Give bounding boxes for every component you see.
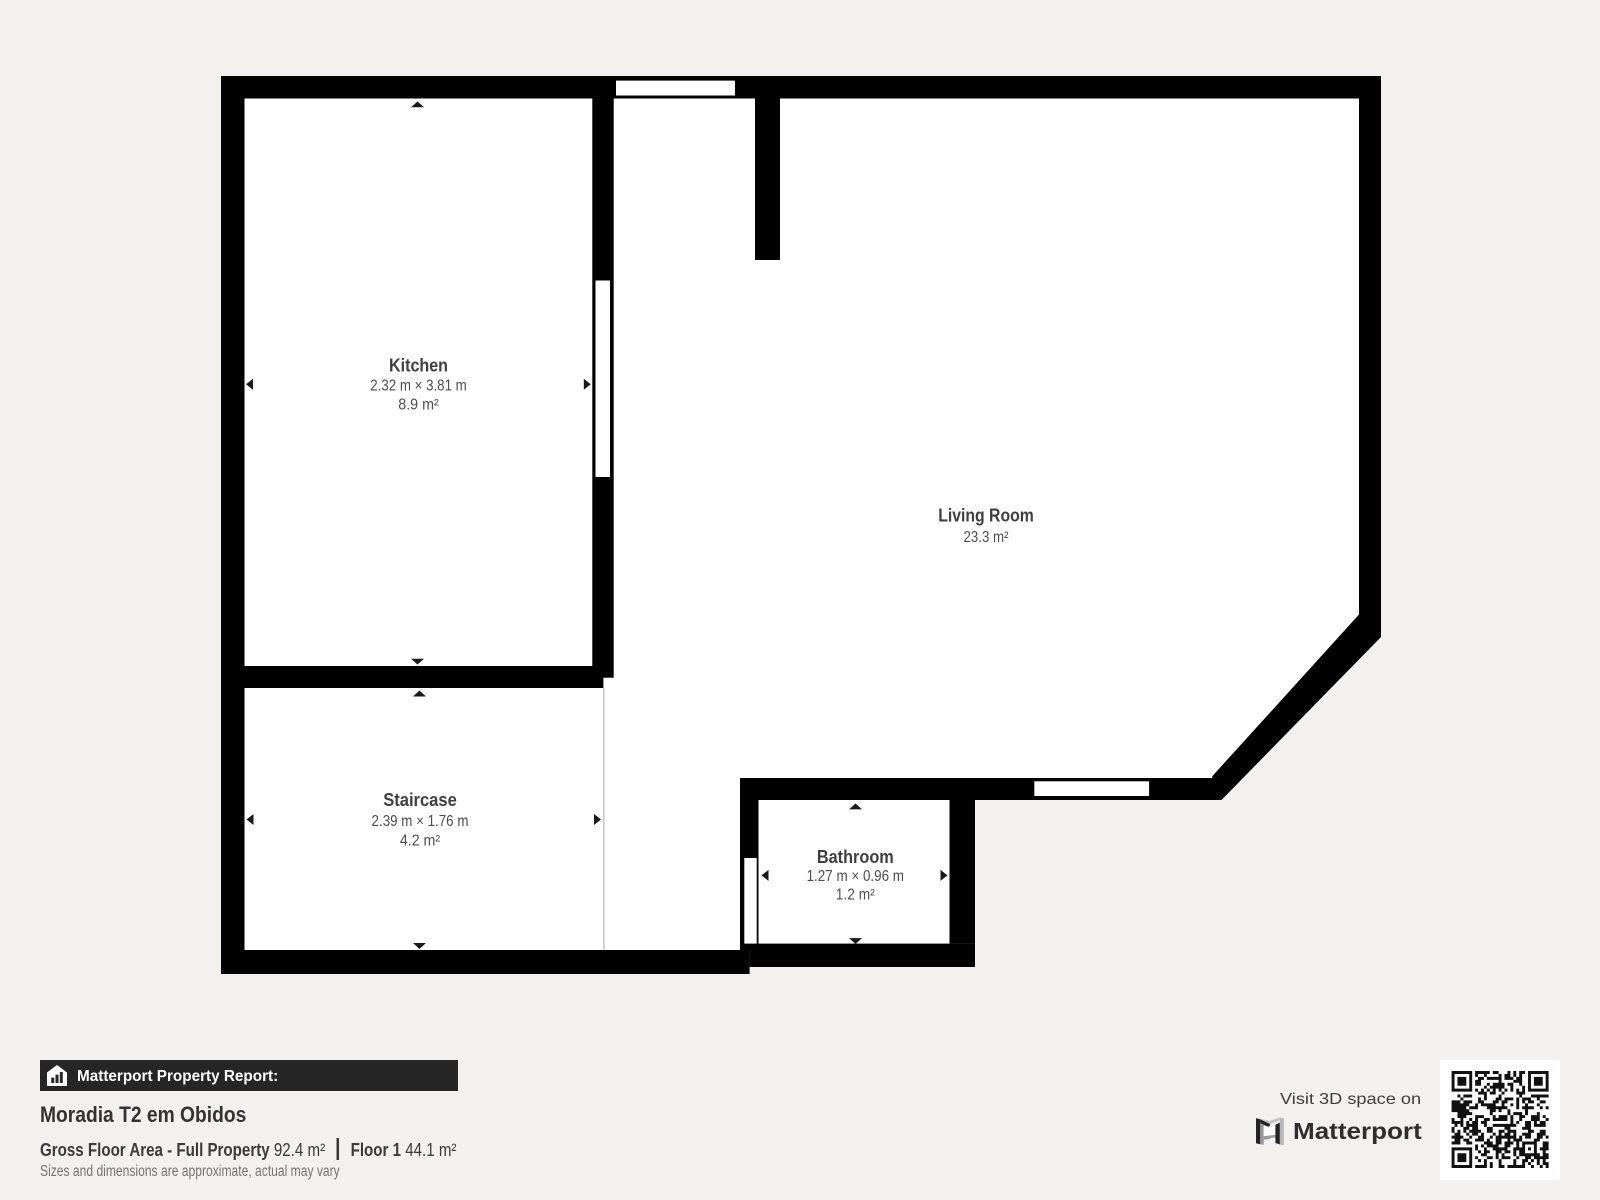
- svg-text:2.32 m × 3.81 m: 2.32 m × 3.81 m: [370, 378, 467, 395]
- svg-text:Staircase: Staircase: [383, 790, 457, 810]
- svg-text:Bathroom: Bathroom: [817, 847, 894, 867]
- svg-text:1.2 m²: 1.2 m²: [836, 887, 875, 904]
- svg-text:4.2 m²: 4.2 m²: [400, 833, 440, 850]
- svg-text:Kitchen: Kitchen: [389, 356, 448, 376]
- svg-text:Living Room: Living Room: [938, 506, 1034, 526]
- svg-text:8.9 m²: 8.9 m²: [398, 397, 439, 414]
- svg-text:23.3 m²: 23.3 m²: [964, 529, 1009, 546]
- svg-text:2.39 m × 1.76 m: 2.39 m × 1.76 m: [372, 813, 469, 830]
- svg-text:1.27 m × 0.96 m: 1.27 m × 0.96 m: [807, 868, 904, 885]
